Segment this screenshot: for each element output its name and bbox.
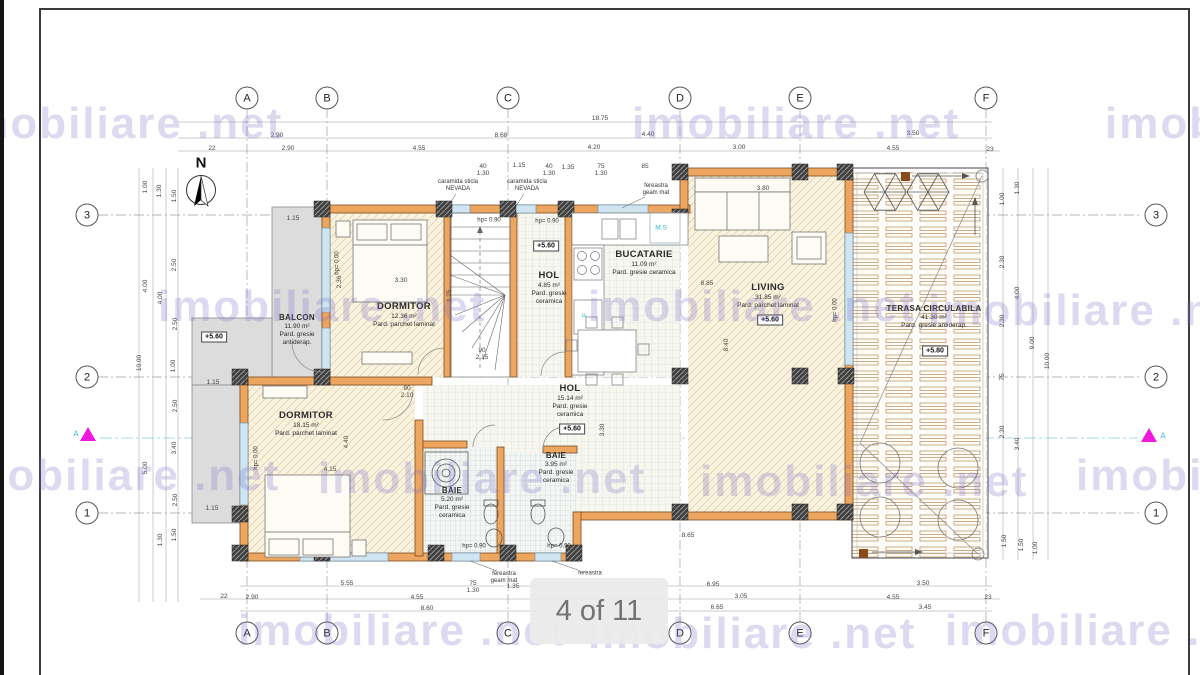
dim-label: 3.00 (733, 145, 746, 152)
dim-label: 2.50 (173, 494, 180, 507)
dim-label: 2.50 (173, 400, 180, 413)
elevation-terasa: +5.80 (922, 346, 948, 357)
page-indicator[interactable]: 4 of 11 (530, 578, 668, 644)
room-floor: Pard. parchet laminat (363, 321, 445, 329)
dim-label: 5.55 (341, 581, 354, 588)
dim-label: 4.00 (143, 280, 150, 293)
dim-label: 23 (986, 147, 993, 154)
dim-label: 2.50 (172, 259, 179, 272)
dim-label: 5.00 (143, 462, 150, 475)
grid-col-d-top: D (669, 87, 692, 110)
dim-label: 1.00 (1033, 542, 1040, 555)
dim-label: 3.30 (600, 424, 607, 437)
dim-label: 8.65 (682, 533, 695, 540)
dim-label: 2.50 (173, 318, 180, 331)
dim-label: 18.75 (592, 116, 608, 123)
room-floor: Pard. gresie ceramica (540, 403, 600, 419)
dim-label: 1.15 (513, 163, 526, 170)
dim-label: 2.30 (1000, 426, 1007, 439)
dim-label: 23 (984, 595, 991, 602)
room-name: DORMITOR (265, 410, 347, 422)
room-area: 5.20 m² (427, 496, 477, 504)
dim-label: 75 (1000, 373, 1007, 380)
room-area: 11.09 m² (598, 261, 690, 269)
dim-label: 8.40 (724, 339, 731, 352)
annotation-fereastra-geam-mat-1: fereastra geam mat (636, 183, 676, 197)
room-label-dormitor-2: DORMITOR 18.15 m² Pard. parchet laminat (265, 410, 347, 438)
room-floor: Pard. gresie ceramica (598, 269, 690, 277)
grid-col-c-bottom: C (497, 622, 520, 645)
dim-label: 1.50 (172, 190, 179, 203)
room-area: 12.36 m² (363, 313, 445, 321)
dim-label: 1.30 (595, 171, 608, 178)
room-floor: Pard. gresie ceramica (531, 469, 581, 485)
room-area: 4.85 m² (526, 282, 572, 290)
annotation-hp090-4: hp= 0.90 (547, 544, 571, 551)
room-floor: Pard. parchet laminat (722, 302, 814, 310)
grid-row-2-right: 2 (1145, 366, 1168, 389)
dim-label: 1.30 (1015, 182, 1022, 195)
room-area: 41.30 m² (878, 314, 990, 322)
dim-label: 8.85 (701, 281, 714, 288)
dim-label: 1.00 (143, 181, 150, 194)
grid-col-e-bottom: E (789, 622, 812, 645)
grid-row-3-right: 3 (1145, 204, 1168, 227)
annotation-ms: M.S (655, 224, 667, 231)
dim-label: 2.10 (401, 393, 414, 400)
dim-label: 1.30 (543, 171, 556, 178)
north-label: N (196, 155, 207, 172)
dim-label: 1.00 (171, 360, 178, 373)
room-label-balcon: BALCON 11.90 m² Pard. gresie antiderap. (271, 313, 323, 347)
annotation-hp090-2: hp= 0.90 (535, 219, 559, 226)
dim-label: 10.00 (1045, 353, 1052, 369)
grid-col-a-bottom: A (236, 622, 259, 645)
annotation-fereastra: fereastra (578, 571, 602, 578)
room-floor: Pard. parchet laminat (265, 430, 347, 438)
dim-label: 1.35 (507, 584, 520, 591)
room-name: BUCATARIE (598, 249, 690, 261)
room-area: 15.14 m² (540, 395, 600, 403)
dim-label: 3.05 (735, 594, 748, 601)
dim-label: 3.25 (447, 290, 454, 303)
elevation-balcon: +5.60 (201, 332, 227, 343)
text-layer: A B C D E F A B C D E F 3 2 1 3 2 1 N A … (0, 0, 1200, 675)
room-label-baie-1: BAIE 5.20 m² Pard. gresie ceramica (427, 486, 477, 520)
section-label-left: A (73, 430, 78, 439)
dim-label: 1.35 (562, 165, 575, 172)
dim-label: 2.15 (476, 355, 489, 362)
grid-row-1-left: 1 (76, 502, 99, 525)
dim-label: 1.30 (467, 588, 480, 595)
grid-col-f-top: F (975, 87, 998, 110)
elevation-hol-sus: +5.60 (533, 241, 559, 252)
room-label-hol-sus: HOL 4.85 m² Pard. gresie ceramica (526, 270, 572, 306)
dim-label: 3.45 (919, 605, 932, 612)
room-floor: Pard. gresie antiderap. (878, 322, 990, 330)
dim-label: 1.30 (157, 185, 164, 198)
grid-row-1-right: 1 (1145, 502, 1168, 525)
room-floor: Pard. gresie antiderap. (271, 331, 323, 347)
dim-label: 4.40 (642, 132, 655, 139)
section-label-right: A (1160, 432, 1165, 441)
annotation-f: F (581, 313, 588, 317)
dim-label: 1.50 (172, 529, 179, 542)
dim-label: 1.50 (1002, 535, 1009, 548)
annotation-hp090-1: hp= 0.90 (477, 218, 501, 225)
room-name: HOL (540, 383, 600, 395)
room-name: TERASA CIRCULABILA (878, 304, 990, 314)
dim-label: 3.40 (1015, 438, 1022, 451)
dim-label: 1.00 (1000, 193, 1007, 206)
dim-label: 4.55 (413, 146, 426, 153)
grid-col-e-top: E (789, 87, 812, 110)
grid-col-b-bottom: B (316, 622, 339, 645)
room-label-dormitor-1: DORMITOR 12.36 m² Pard. parchet laminat (363, 301, 445, 329)
dim-label: 4.55 (887, 595, 900, 602)
annotation-nevada-2: caramida sticla NEVADA (503, 179, 551, 193)
letterbox-bar (0, 0, 4, 675)
dim-label: 2.90 (246, 595, 259, 602)
dim-label: 10.00 (137, 355, 144, 371)
dim-label: 3.50 (917, 581, 930, 588)
room-area: 31.85 m² (722, 294, 814, 302)
grid-col-d-bottom: D (669, 622, 692, 645)
room-area: 3.95 m² (531, 461, 581, 469)
dim-label: 2.90 (271, 133, 284, 140)
dim-label: 2.30 (1000, 315, 1007, 328)
grid-col-b-top: B (316, 87, 339, 110)
room-label-hol-jos: HOL 15.14 m² Pard. gresie ceramica (540, 383, 600, 419)
room-floor: Pard. gresie ceramica (526, 290, 572, 306)
annotation-nevada-1: caramida sticla NEVADA (434, 179, 482, 193)
room-name: BAIE (531, 451, 581, 461)
dim-label: 4.00 (1015, 287, 1022, 300)
room-area: 11.90 m² (271, 323, 323, 331)
dim-label: 9.00 (1030, 337, 1037, 350)
dim-label: 3.50 (907, 131, 920, 138)
dim-label: 4.20 (588, 145, 601, 152)
room-name: LIVING (722, 282, 814, 294)
dim-label: 85 (641, 164, 648, 171)
grid-row-2-left: 2 (76, 366, 99, 389)
dim-label: 4.00 (158, 292, 165, 305)
room-name: DORMITOR (363, 301, 445, 313)
elevation-hol-jos: +5.60 (559, 424, 585, 435)
annotation-hp000-3: hp= 0.00 (833, 298, 840, 322)
dim-label: 6.95 (707, 582, 720, 589)
room-label-living: LIVING 31.85 m² Pard. parchet laminat (722, 282, 814, 310)
grid-col-a-top: A (236, 87, 259, 110)
dim-label: 6.65 (711, 605, 724, 612)
room-label-baie-2: BAIE 3.95 m² Pard. gresie ceramica (531, 451, 581, 485)
elevation-living: +5.60 (757, 315, 783, 326)
dim-label: 22 (220, 594, 227, 601)
room-name: HOL (526, 270, 572, 282)
room-label-terasa: TERASA CIRCULABILA 41.30 m² Pard. gresie… (878, 304, 990, 330)
room-name: BAIE (427, 486, 477, 496)
dim-label: 8.68 (495, 133, 508, 140)
dim-label: 4.55 (887, 146, 900, 153)
dim-label: 4.15 (324, 467, 337, 474)
annotation-hp000-1: hp= 0.00 (335, 251, 342, 275)
dim-label: 3.80 (757, 186, 770, 193)
dim-label: 8.60 (421, 606, 434, 613)
dim-label: 1.30 (158, 534, 165, 547)
dim-label: 1.15 (206, 506, 219, 513)
grid-row-3-left: 3 (76, 204, 99, 227)
room-area: 18.15 m² (265, 422, 347, 430)
room-floor: Pard. gresie ceramica (427, 504, 477, 520)
dim-label: 2.36 (337, 276, 344, 289)
dim-label: 3.30 (395, 278, 408, 285)
floorplan-viewer: A B C D E F A B C D E F 3 2 1 3 2 1 N A … (0, 0, 1200, 675)
annotation-hp090-3: hp= 0.90 (462, 544, 486, 551)
dim-label: 4.40 (344, 436, 351, 449)
dim-label: 4.55 (411, 595, 424, 602)
dim-label: 3.40 (172, 442, 179, 455)
grid-col-c-top: C (497, 87, 520, 110)
dim-label: 1.50 (1019, 539, 1026, 552)
dim-label: 1.30 (477, 171, 490, 178)
room-label-bucatarie: BUCATARIE 11.09 m² Pard. gresie ceramica (598, 249, 690, 277)
grid-col-f-bottom: F (975, 622, 998, 645)
dim-label: 1.15 (287, 216, 300, 223)
dim-label: 2.30 (1000, 256, 1007, 269)
dim-label: 2.90 (282, 146, 295, 153)
annotation-hp000-2: hp= 0.00 (254, 446, 261, 470)
room-name: BALCON (271, 313, 323, 323)
dim-label: 22 (208, 146, 215, 153)
dim-label: 1.15 (207, 380, 220, 387)
